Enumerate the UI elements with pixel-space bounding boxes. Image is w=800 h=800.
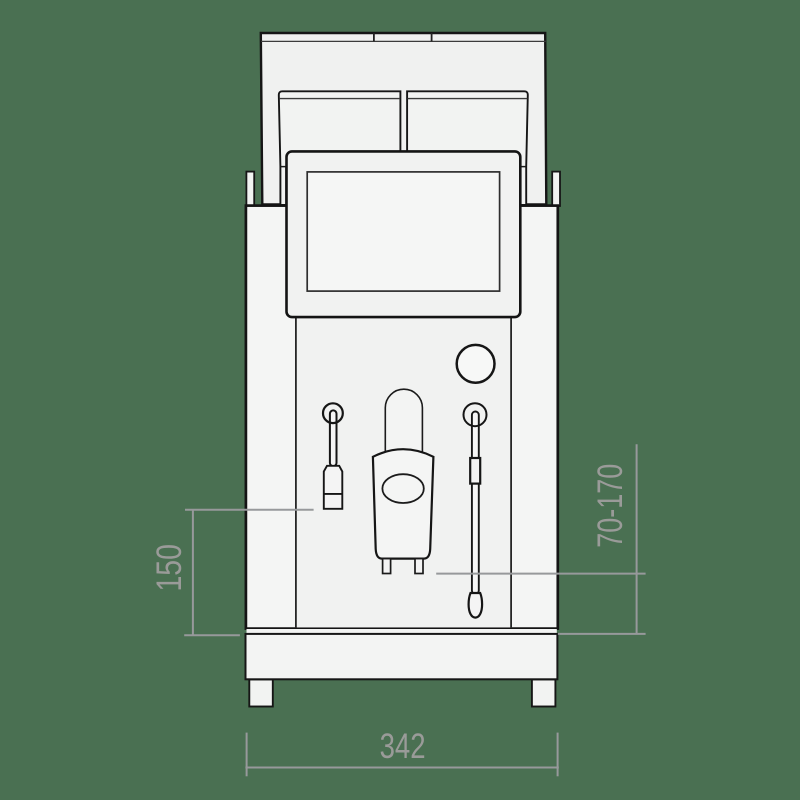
svg-text:70-170: 70-170	[591, 464, 630, 548]
svg-text:342: 342	[380, 727, 426, 766]
svg-text:150: 150	[150, 544, 189, 592]
